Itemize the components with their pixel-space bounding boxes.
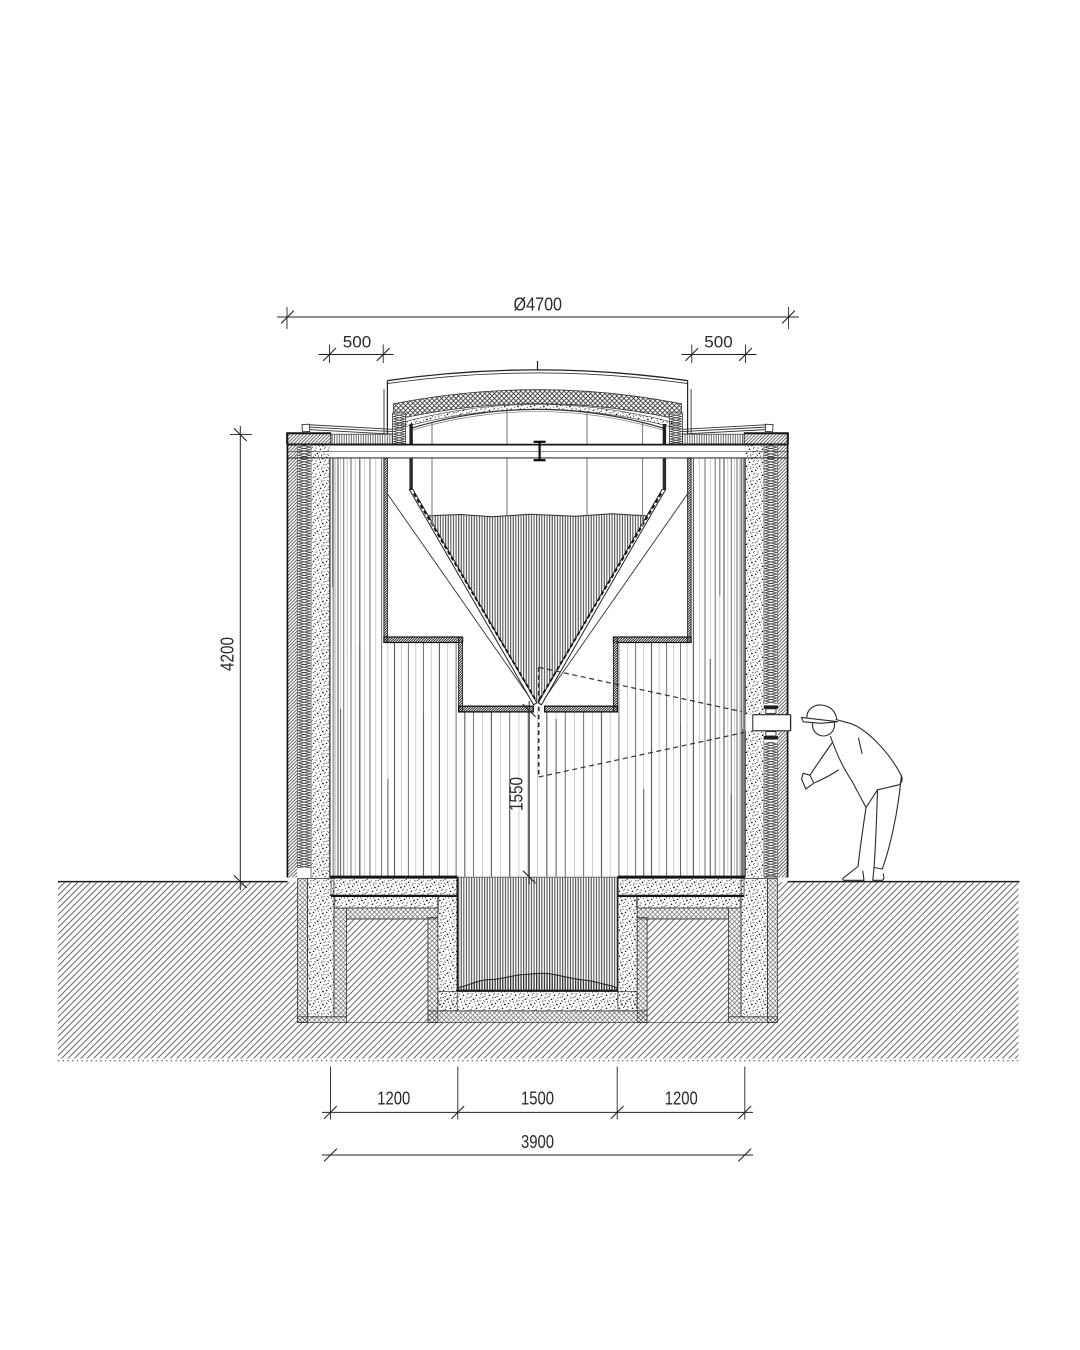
svg-text:4200: 4200: [217, 637, 238, 671]
svg-text:1550: 1550: [505, 777, 526, 811]
svg-text:3900: 3900: [521, 1131, 554, 1152]
svg-text:500: 500: [343, 333, 372, 352]
svg-text:Ø4700: Ø4700: [514, 295, 563, 315]
svg-text:1200: 1200: [665, 1088, 698, 1109]
svg-text:500: 500: [704, 333, 733, 352]
svg-text:1200: 1200: [377, 1088, 410, 1109]
svg-text:1500: 1500: [521, 1088, 554, 1109]
